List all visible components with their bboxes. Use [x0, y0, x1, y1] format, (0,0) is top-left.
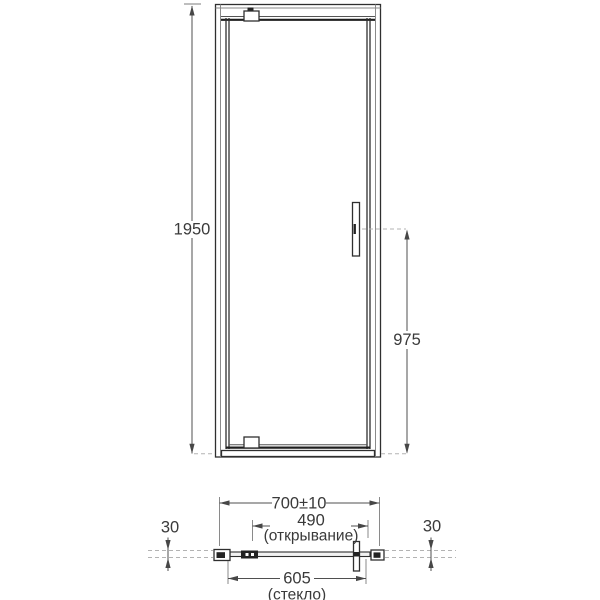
arrowhead-up	[428, 558, 433, 568]
left-wall-profile-core	[217, 552, 226, 558]
plan-dimensions: 700±10 490 (открывание) 605 (стекло)	[161, 495, 441, 600]
door-technical-drawing: 1950 975	[0, 0, 600, 600]
front-view	[216, 5, 381, 458]
hinge-section	[241, 551, 258, 559]
handle-height-dimension-label: 975	[393, 331, 421, 349]
left-profile-dimension-label: 30	[161, 519, 179, 537]
arrowhead-left	[220, 500, 230, 505]
hinge-slot-1	[246, 553, 249, 556]
dimension-left-profile-30: 30	[161, 519, 179, 572]
plan-view	[148, 542, 456, 572]
door-handle	[353, 203, 360, 257]
hinge-slot-2	[251, 553, 254, 556]
dimension-height-1950: 1950	[174, 4, 214, 454]
threshold-bar	[222, 451, 375, 457]
top-hinge	[244, 11, 259, 21]
dimension-opening-490: 490 (открывание)	[253, 512, 369, 545]
arrowhead-left	[228, 576, 238, 581]
arrowhead-up	[404, 230, 409, 240]
arrowhead-up	[189, 6, 194, 16]
right-profile-dimension-label: 30	[423, 518, 441, 536]
handle-section-core	[354, 552, 360, 557]
opening-dimension-note: (открывание)	[264, 528, 359, 545]
total-width-dimension-label: 700±10	[272, 495, 327, 513]
arrowhead-up	[165, 558, 170, 568]
arrowhead-down	[189, 444, 194, 454]
dimension-right-profile-30: 30	[423, 518, 441, 572]
glass-dimension-label: 605	[283, 570, 311, 588]
door-handle-mount	[354, 224, 356, 234]
arrowhead-right	[358, 523, 368, 528]
height-dimension-label: 1950	[174, 221, 211, 239]
arrowhead-down	[428, 540, 433, 550]
dimension-glass-605: 605 (стекло)	[228, 559, 366, 600]
drawing-canvas: 1950 975	[0, 0, 600, 600]
arrowhead-right	[370, 500, 380, 505]
arrowhead-right	[356, 576, 366, 581]
arrowhead-left	[253, 523, 263, 528]
arrowhead-down	[165, 540, 170, 550]
bottom-hinge	[244, 437, 259, 448]
arrowhead-down	[404, 444, 409, 454]
glass-dimension-note: (стекло)	[268, 587, 326, 600]
right-wall-profile-core	[374, 552, 381, 557]
